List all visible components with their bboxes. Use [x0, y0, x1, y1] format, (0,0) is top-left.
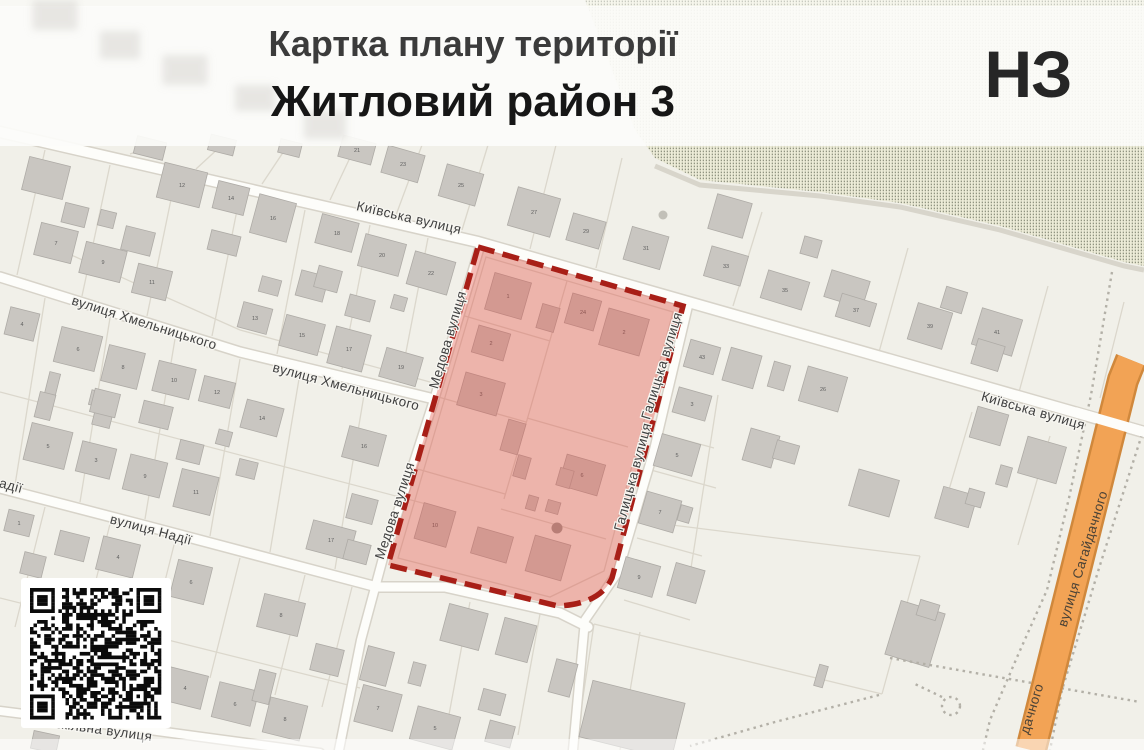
svg-text:17: 17 [328, 538, 334, 544]
svg-text:35: 35 [782, 288, 788, 294]
svg-text:16: 16 [270, 216, 276, 222]
svg-text:3: 3 [690, 402, 693, 408]
svg-text:11: 11 [193, 490, 199, 496]
svg-text:4: 4 [183, 686, 186, 692]
svg-text:26: 26 [820, 387, 826, 393]
svg-text:8: 8 [283, 717, 286, 723]
svg-text:31: 31 [643, 246, 649, 252]
svg-text:37: 37 [853, 308, 859, 314]
svg-text:4: 4 [20, 322, 23, 328]
svg-text:12: 12 [179, 183, 185, 189]
svg-text:14: 14 [228, 196, 234, 202]
svg-text:16: 16 [361, 444, 367, 450]
svg-text:17: 17 [346, 347, 352, 353]
svg-text:Житловий район 3: Житловий район 3 [270, 77, 675, 126]
svg-text:5: 5 [46, 444, 49, 450]
svg-text:9: 9 [143, 474, 146, 480]
svg-text:25: 25 [458, 183, 464, 189]
svg-text:33: 33 [723, 264, 729, 270]
svg-text:20: 20 [379, 253, 385, 259]
svg-text:10: 10 [171, 378, 177, 384]
svg-text:12: 12 [214, 390, 220, 396]
svg-text:5: 5 [675, 453, 678, 459]
svg-text:6: 6 [233, 702, 236, 708]
svg-text:5: 5 [433, 726, 436, 732]
svg-text:8: 8 [279, 613, 282, 619]
svg-text:7: 7 [376, 706, 379, 712]
svg-text:18: 18 [334, 231, 340, 237]
svg-text:Картка плану території: Картка плану території [268, 23, 678, 64]
svg-text:7: 7 [658, 510, 661, 516]
svg-text:9: 9 [101, 260, 104, 266]
svg-text:НЗ: НЗ [984, 37, 1071, 111]
svg-text:4: 4 [116, 555, 119, 561]
svg-text:11: 11 [149, 280, 155, 286]
svg-text:23: 23 [400, 162, 406, 168]
svg-text:29: 29 [583, 229, 589, 235]
svg-text:9: 9 [637, 575, 640, 581]
svg-text:8: 8 [121, 365, 124, 371]
svg-text:14: 14 [259, 416, 265, 422]
svg-text:21: 21 [354, 148, 360, 154]
svg-text:43: 43 [699, 355, 705, 361]
svg-text:13: 13 [252, 316, 258, 322]
svg-text:6: 6 [189, 580, 192, 586]
svg-text:7: 7 [54, 241, 57, 247]
svg-text:41: 41 [994, 330, 1000, 336]
svg-text:39: 39 [927, 324, 933, 330]
svg-text:15: 15 [299, 333, 305, 339]
svg-text:6: 6 [76, 347, 79, 353]
svg-text:22: 22 [428, 271, 434, 277]
svg-text:27: 27 [531, 210, 537, 216]
svg-text:19: 19 [398, 365, 404, 371]
svg-text:3: 3 [94, 458, 97, 464]
svg-text:1: 1 [17, 521, 20, 527]
